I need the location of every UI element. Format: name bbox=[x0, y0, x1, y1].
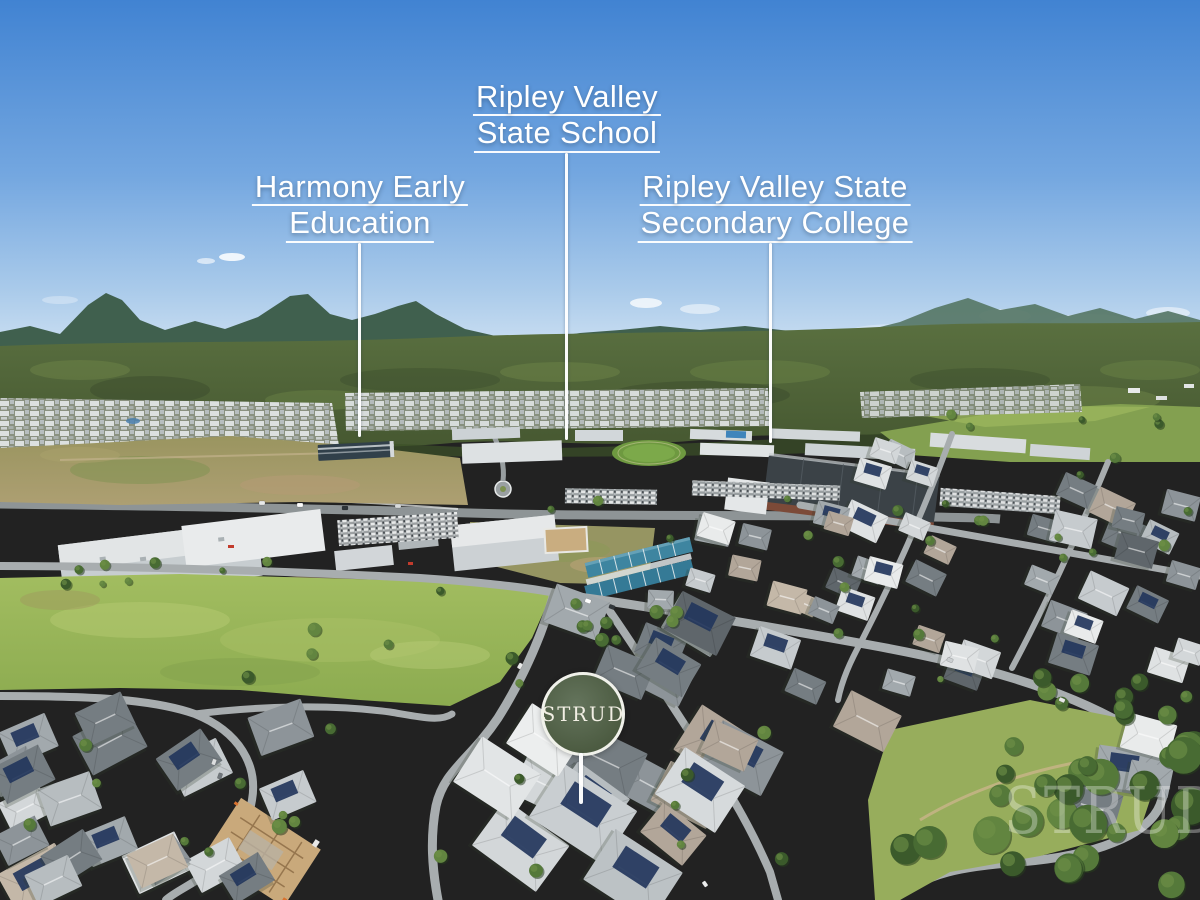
callout-harmony-pointer-line bbox=[358, 243, 361, 437]
callout-harmony-line2: Education bbox=[286, 208, 433, 242]
callout-school-line2: State School bbox=[474, 118, 661, 152]
construction-pad bbox=[544, 527, 587, 553]
strud-logo-badge: STRUD bbox=[541, 672, 625, 756]
callout-college-line2: Secondary College bbox=[638, 208, 913, 242]
callout-harmony-label: Harmony Early Education bbox=[252, 172, 468, 245]
callout-college-line1: Ripley Valley State bbox=[639, 172, 910, 206]
badge-pointer-line bbox=[579, 753, 583, 804]
callout-school-pointer-line bbox=[565, 153, 568, 440]
aerial-photo: Ripley Valley State School Harmony Early… bbox=[0, 0, 1200, 900]
callout-school-label: Ripley Valley State School bbox=[473, 82, 661, 155]
strud-watermark: STRUD bbox=[1004, 779, 1200, 844]
callout-college-label: Ripley Valley State Secondary College bbox=[638, 172, 913, 245]
callout-college-pointer-line bbox=[769, 243, 772, 443]
callout-school-line1: Ripley Valley bbox=[473, 82, 661, 116]
sky bbox=[0, 0, 1200, 352]
strud-logo-text: STRUD bbox=[541, 702, 624, 726]
green-field bbox=[0, 574, 552, 706]
callout-harmony-line1: Harmony Early bbox=[252, 172, 468, 206]
